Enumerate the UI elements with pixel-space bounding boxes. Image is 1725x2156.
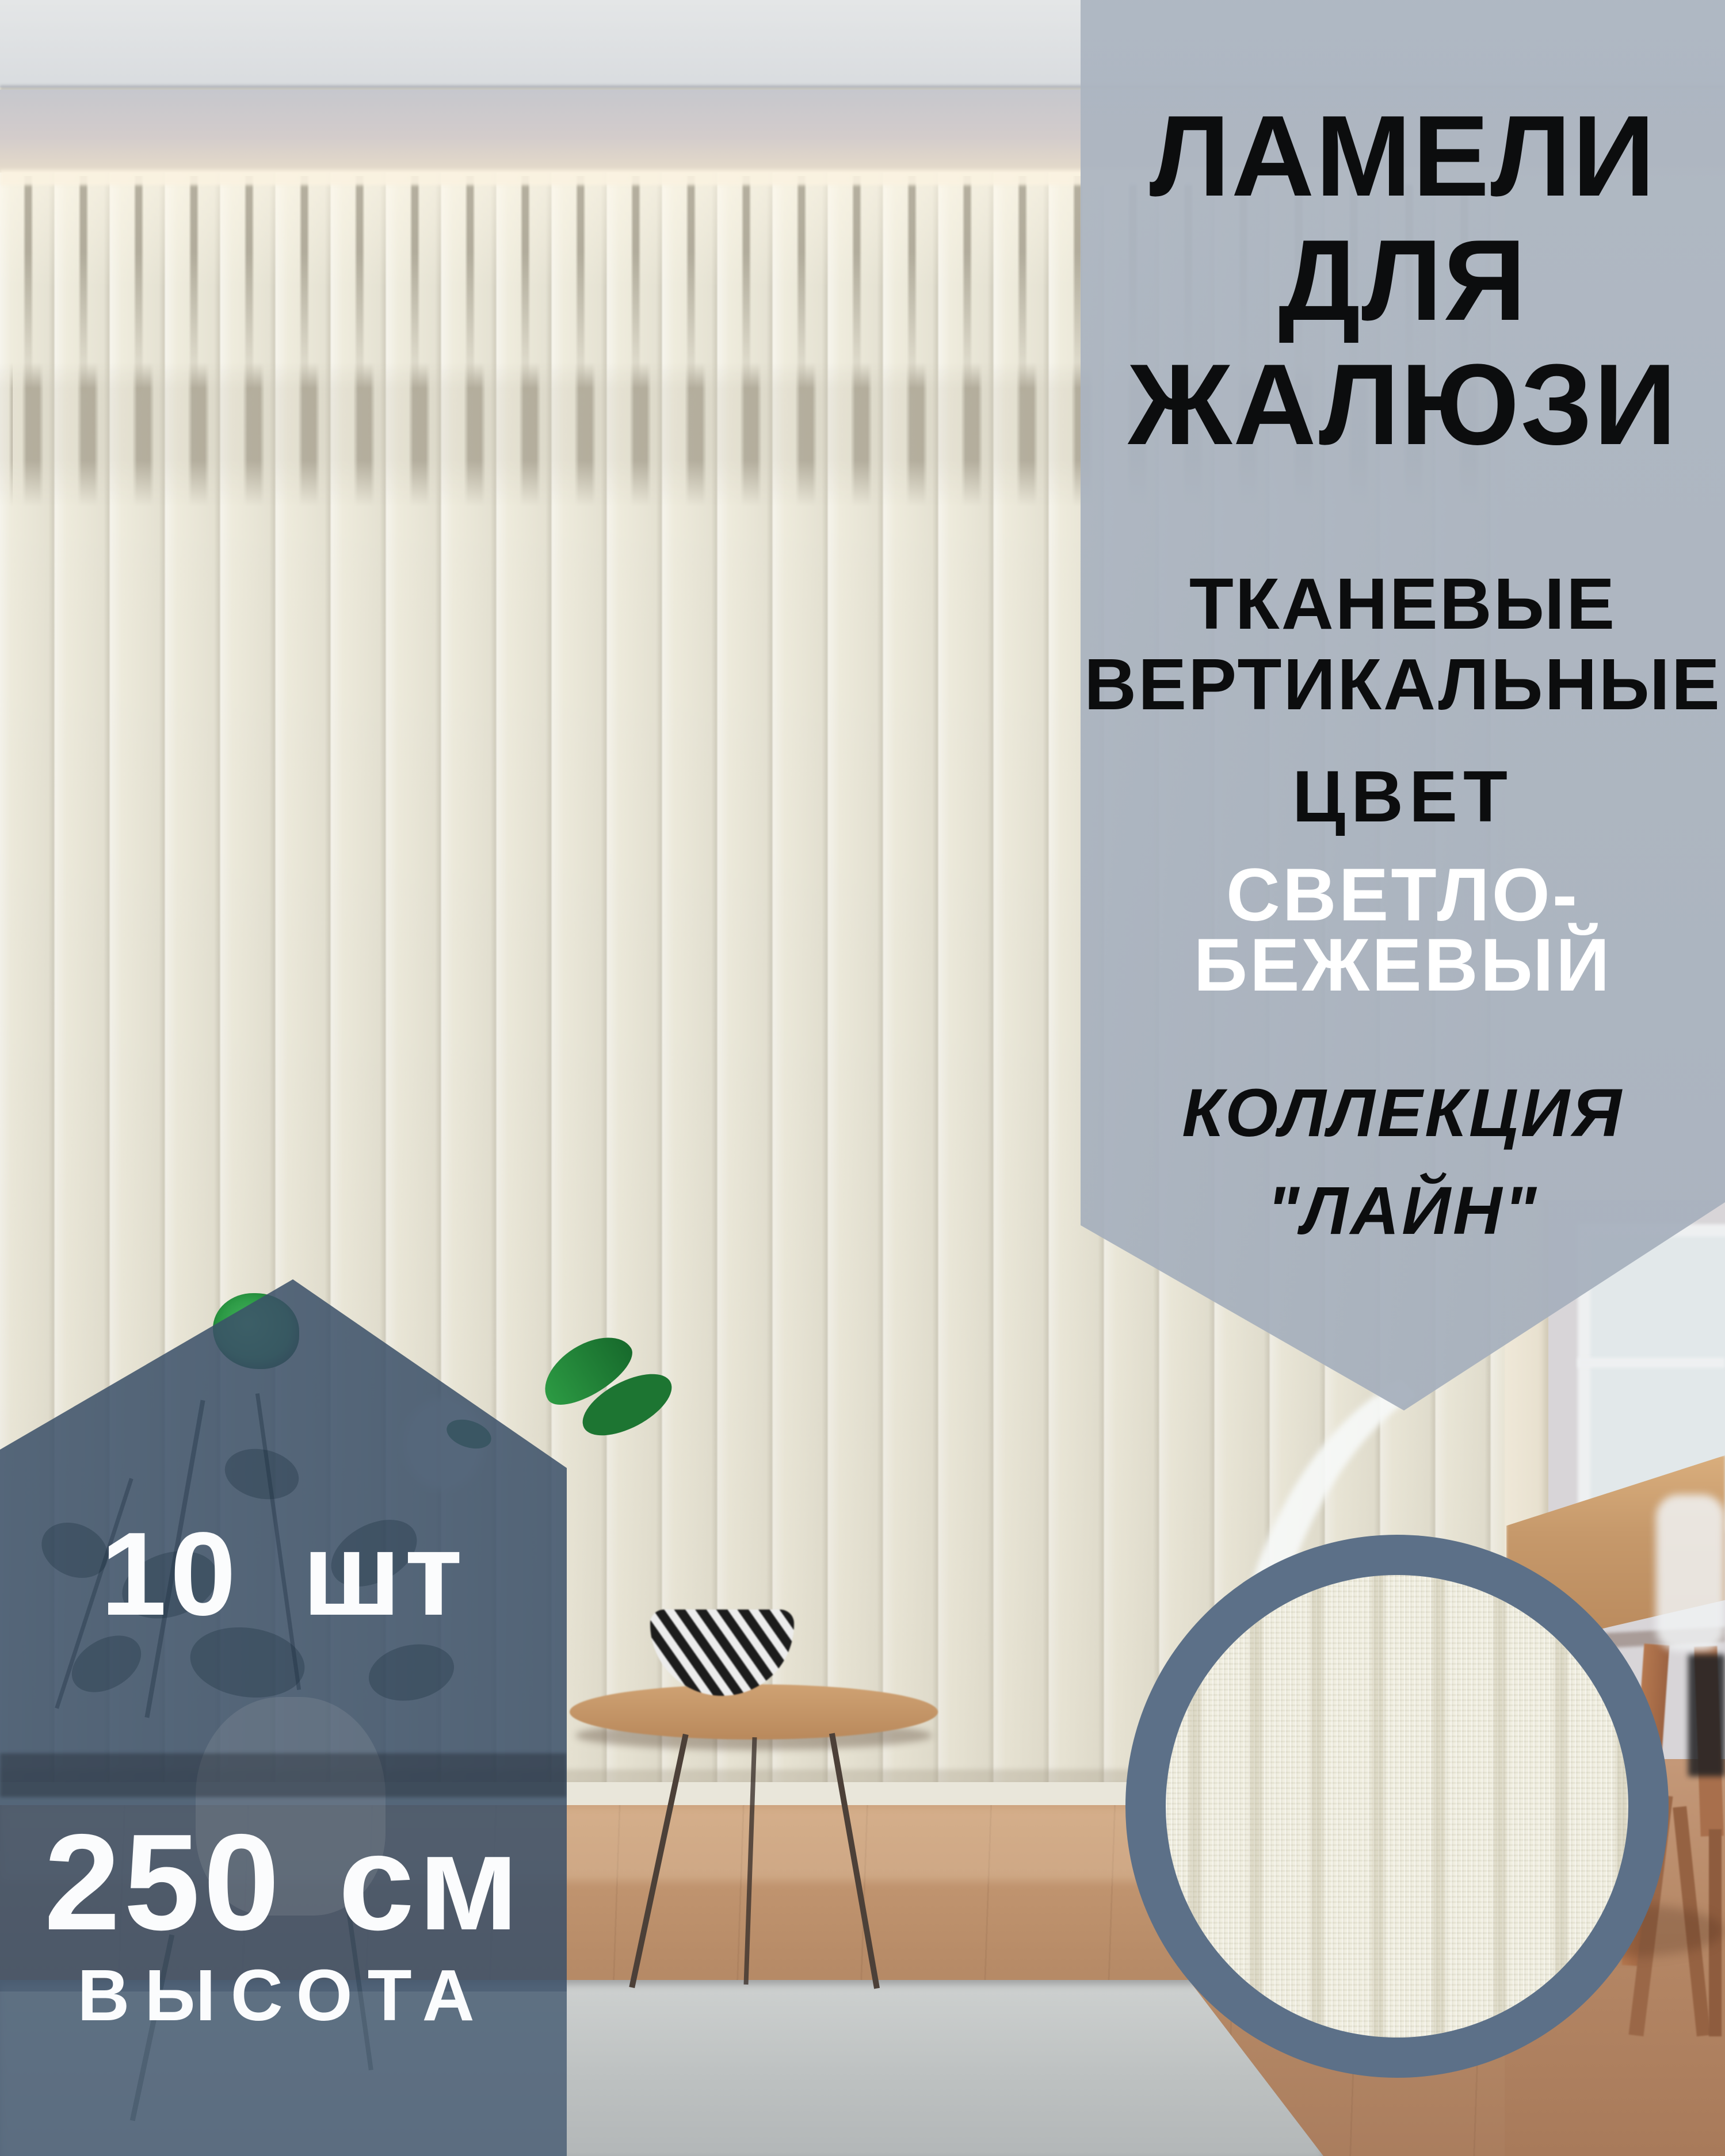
collection-line: "ЛАЙН" [1081,1162,1725,1260]
product-card-image: 10 шт 250 см ВЫСОТА ЛАМЕЛИ ДЛЯ ЖАЛЮЗИ ТК… [0,0,1725,2156]
collection-text: КОЛЛЕКЦИЯ "ЛАЙН" [1081,1064,1725,1260]
title-line: ДЛЯ [1081,219,1725,343]
material-text: ТКАНЕВЫЕ ВЕРТИКАЛЬНЫЕ [1081,564,1725,725]
white-chair-blur [1656,1494,1725,1651]
title-line: ЛАМЕЛИ [1081,94,1725,219]
dark-chair-shadow [1688,1654,1725,1776]
height-number: 250 [44,1806,283,1959]
material-line: ВЕРТИКАЛЬНЫЕ [1081,644,1725,725]
color-value: СВЕТЛО- БЕЖЕВЫЙ [1081,859,1725,1000]
height-label: ВЫСОТА [0,1954,567,2037]
leaf-silhouette [364,1637,459,1708]
fabric-swatch [1125,1535,1669,2078]
window-divider [1578,1358,1725,1368]
color-value-line: БЕЖЕВЫЙ [1081,930,1725,1000]
color-label: ЦВЕТ [1081,755,1725,838]
leaf-silhouette [220,1442,304,1505]
quantity-unit: шт [302,1508,466,1640]
title-line: ЖАЛЮЗИ [1081,343,1725,467]
height-unit: см [338,1806,522,1959]
table-silhouette [0,1753,567,1797]
product-title: ЛАМЕЛИ ДЛЯ ЖАЛЮЗИ [1081,94,1725,467]
collection-line: КОЛЛЕКЦИЯ [1081,1064,1725,1162]
side-table [570,1684,938,1740]
color-value-line: СВЕТЛО- [1081,859,1725,930]
fabric-texture [1166,1575,1628,2038]
quantity-text: 10 шт [0,1506,567,1642]
material-line: ТКАНЕВЫЕ [1081,564,1725,644]
quantity-count: 10 [101,1508,239,1640]
height-value: 250 см [0,1804,567,1961]
